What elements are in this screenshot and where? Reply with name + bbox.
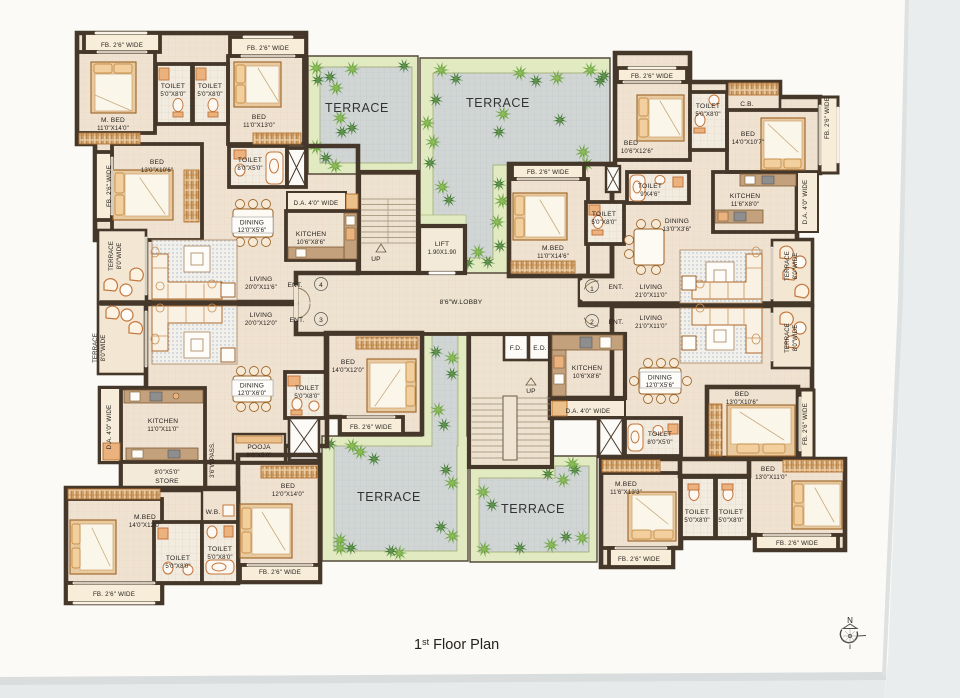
svg-text:TOILET: TOILET — [719, 509, 743, 516]
svg-text:C.B.: C.B. — [740, 101, 754, 108]
svg-text:LIVING: LIVING — [250, 276, 273, 283]
svg-text:1.90X1.90: 1.90X1.90 — [428, 249, 457, 256]
svg-text:13'0"X3'6": 13'0"X3'6" — [663, 226, 692, 233]
svg-text:UP: UP — [526, 388, 536, 395]
svg-text:FB. 2'6" WIDE: FB. 2'6" WIDE — [106, 165, 113, 207]
svg-text:POOJA: POOJA — [247, 444, 271, 451]
svg-text:W.B.: W.B. — [206, 509, 221, 516]
svg-text:8'0"WIDE: 8'0"WIDE — [116, 243, 123, 270]
svg-text:M.BED: M.BED — [134, 514, 156, 521]
svg-text:F.D.: F.D. — [510, 345, 523, 352]
svg-text:BED: BED — [735, 391, 749, 398]
svg-text:FB. 2'6" WIDE: FB. 2'6" WIDE — [631, 73, 673, 80]
svg-text:FB. 2'6" WIDE: FB. 2'6" WIDE — [350, 424, 392, 431]
svg-text:D.A. 4'0" WIDE: D.A. 4'0" WIDE — [294, 200, 339, 207]
svg-text:12'0"X5'6": 12'0"X5'6" — [646, 382, 675, 389]
svg-text:DINING: DINING — [665, 218, 689, 225]
svg-text:5'0"X8'0": 5'0"X8'0" — [684, 517, 709, 524]
svg-text:KITCHEN: KITCHEN — [730, 193, 760, 200]
svg-text:14'0"X10'7": 14'0"X10'7" — [732, 139, 764, 146]
svg-text:M. BED: M. BED — [101, 117, 125, 124]
svg-text:BED: BED — [341, 359, 355, 366]
svg-text:5'0"X8'0": 5'0"X8'0" — [165, 563, 190, 570]
svg-text:STORE: STORE — [155, 478, 179, 485]
svg-text:TOILET: TOILET — [685, 509, 709, 516]
svg-text:FB. 2'6" WIDE: FB. 2'6" WIDE — [527, 169, 569, 176]
svg-text:TERRACE: TERRACE — [92, 333, 99, 363]
svg-text:ENT.: ENT. — [289, 317, 304, 324]
svg-text:TOILET: TOILET — [638, 183, 662, 190]
svg-text:8'0"WIDE: 8'0"WIDE — [792, 325, 799, 352]
svg-text:TERRACE: TERRACE — [325, 101, 389, 115]
svg-text:12'0"X14'0": 12'0"X14'0" — [272, 491, 304, 498]
svg-text:3'6"W.PASS.: 3'6"W.PASS. — [209, 442, 216, 478]
svg-text:5'0"X8'0": 5'0"X8'0" — [207, 554, 232, 561]
svg-text:1: 1 — [590, 286, 594, 293]
svg-text:ENT.: ENT. — [287, 282, 302, 289]
svg-text:FB. 2'6" WIDE: FB. 2'6" WIDE — [101, 42, 143, 49]
svg-text:LIVING: LIVING — [250, 312, 273, 319]
svg-text:5'0"X8'0": 5'0"X8'0" — [591, 219, 616, 226]
svg-text:LIVING: LIVING — [640, 315, 663, 322]
svg-text:5'0"X8'0": 5'0"X8'0" — [718, 517, 743, 524]
svg-text:D.A. 4'0" WIDE: D.A. 4'0" WIDE — [802, 180, 809, 225]
svg-text:11'0"X14'6": 11'0"X14'6" — [537, 253, 569, 260]
svg-text:5'0"X8'0": 5'0"X8'0" — [695, 111, 720, 118]
svg-text:13'0"X10'6": 13'0"X10'6" — [726, 399, 758, 406]
svg-text:M.BED: M.BED — [615, 481, 637, 488]
svg-text:8'0"WIDE: 8'0"WIDE — [792, 253, 799, 280]
svg-text:ENT.: ENT. — [608, 284, 623, 291]
svg-text:BED: BED — [624, 140, 638, 147]
svg-text:TERRACE: TERRACE — [466, 96, 530, 110]
svg-text:11'6"X8'0": 11'6"X8'0" — [731, 201, 759, 208]
svg-text:12'0"X5'6": 12'0"X5'6" — [238, 227, 267, 234]
svg-text:UP: UP — [371, 256, 381, 263]
svg-text:21'0"X11'0": 21'0"X11'0" — [635, 292, 667, 299]
svg-text:13'0"X10'6": 13'0"X10'6" — [141, 167, 173, 174]
svg-text:TOILET: TOILET — [295, 385, 319, 392]
svg-text:11'0"X13'0": 11'0"X13'0" — [243, 122, 275, 129]
svg-text:ENT.: ENT. — [608, 319, 623, 326]
svg-text:DINING: DINING — [240, 220, 264, 227]
svg-text:KITCHEN: KITCHEN — [148, 418, 178, 425]
svg-text:D.A. 4'0" WIDE: D.A. 4'0" WIDE — [566, 408, 611, 415]
svg-text:TERRACE: TERRACE — [357, 490, 421, 504]
svg-text:5'0"X8'0": 5'0"X8'0" — [294, 393, 319, 400]
svg-text:M.BED: M.BED — [542, 245, 564, 252]
svg-text:DINING: DINING — [648, 375, 672, 382]
svg-text:BED: BED — [281, 483, 295, 490]
svg-text:8'0"WIDE: 8'0"WIDE — [100, 335, 107, 362]
svg-text:BED: BED — [150, 159, 164, 166]
svg-text:KITCHEN: KITCHEN — [296, 231, 326, 238]
svg-text:10'6"X12'6": 10'6"X12'6" — [621, 148, 653, 155]
svg-text:10'6"X8'6": 10'6"X8'6" — [573, 373, 602, 380]
svg-text:TOILET: TOILET — [648, 431, 672, 438]
svg-text:TOILET: TOILET — [238, 157, 262, 164]
svg-text:14'0"X12'0": 14'0"X12'0" — [332, 367, 364, 374]
svg-text:KITCHEN: KITCHEN — [572, 365, 602, 372]
svg-text:TOILET: TOILET — [208, 546, 232, 553]
svg-text:5'0"X8'0": 5'0"X8'0" — [160, 91, 185, 98]
svg-text:8'0"X5'0": 8'0"X5'0" — [647, 439, 672, 446]
svg-text:8'0"X5'0": 8'0"X5'0" — [154, 469, 179, 476]
svg-text:TERRACE: TERRACE — [501, 502, 565, 516]
svg-text:E.D.: E.D. — [533, 345, 547, 352]
svg-text:FB. 2'6" WIDE: FB. 2'6" WIDE — [824, 97, 831, 139]
svg-text:20'0"X12'0": 20'0"X12'0" — [245, 320, 277, 327]
svg-text:FB. 2'6" WIDE: FB. 2'6" WIDE — [802, 403, 809, 445]
svg-text:BED: BED — [252, 114, 266, 121]
svg-text:TERRACE: TERRACE — [784, 323, 791, 353]
svg-text:4: 4 — [319, 282, 323, 289]
svg-text:FB. 2'6" WIDE: FB. 2'6" WIDE — [247, 45, 289, 52]
svg-text:12'0"X6'0": 12'0"X6'0" — [238, 390, 267, 397]
svg-text:FB. 2'6" WIDE: FB. 2'6" WIDE — [93, 591, 135, 598]
svg-text:20'0"X11'6": 20'0"X11'6" — [245, 284, 277, 291]
svg-text:DINING: DINING — [240, 383, 264, 390]
svg-text:TERRACE: TERRACE — [784, 251, 791, 281]
svg-text:9'X4'6": 9'X4'6" — [640, 191, 659, 198]
svg-text:2: 2 — [590, 319, 594, 326]
svg-text:11'0"X11'0": 11'0"X11'0" — [147, 426, 178, 433]
svg-text:TOILET: TOILET — [198, 83, 222, 90]
svg-text:BED: BED — [761, 466, 775, 473]
svg-text:LIFT: LIFT — [435, 241, 449, 248]
svg-text:TOILET: TOILET — [592, 211, 616, 218]
svg-text:FB. 2'6" WIDE: FB. 2'6" WIDE — [776, 540, 818, 547]
svg-text:8'0"X5'0": 8'0"X5'0" — [237, 165, 262, 172]
svg-text:8'6"W.LOBBY: 8'6"W.LOBBY — [440, 299, 483, 306]
svg-text:LIVING: LIVING — [640, 284, 663, 291]
svg-text:21'0"X11'0": 21'0"X11'0" — [635, 323, 667, 330]
svg-text:3: 3 — [319, 317, 323, 324]
svg-text:D.A. 4'0" WIDE: D.A. 4'0" WIDE — [106, 405, 113, 450]
svg-text:FB. 2'6" WIDE: FB. 2'6" WIDE — [618, 556, 660, 563]
svg-text:BED: BED — [741, 131, 755, 138]
svg-text:TERRACE: TERRACE — [108, 241, 115, 271]
svg-text:TOILET: TOILET — [166, 555, 190, 562]
svg-text:11'6"X13'3": 11'6"X13'3" — [610, 489, 642, 496]
svg-text:FB. 2'6" WIDE: FB. 2'6" WIDE — [259, 569, 301, 576]
svg-text:TOILET: TOILET — [161, 83, 185, 90]
svg-text:TOILET: TOILET — [696, 103, 720, 110]
svg-text:10'6"X8'6": 10'6"X8'6" — [297, 239, 326, 246]
svg-text:8'0"X5'0": 8'0"X5'0" — [246, 452, 271, 459]
svg-text:13'0"X11'0": 13'0"X11'0" — [755, 474, 787, 481]
svg-text:5'0"X8'0": 5'0"X8'0" — [197, 91, 222, 98]
svg-text:14'0"X12'0": 14'0"X12'0" — [129, 522, 161, 529]
svg-text:11'0"X14'0": 11'0"X14'0" — [97, 125, 129, 132]
